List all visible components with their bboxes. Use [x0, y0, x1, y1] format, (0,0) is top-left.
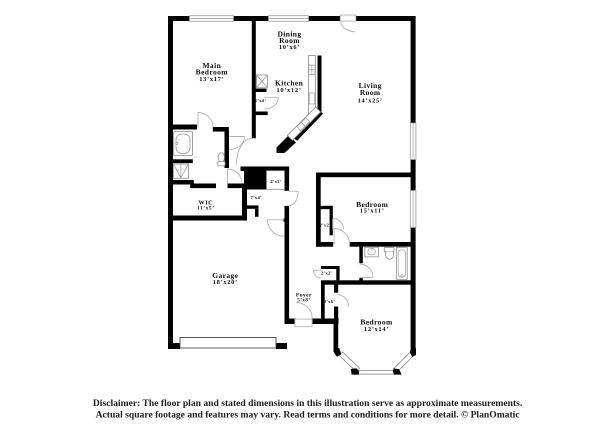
svg-text:2’x2’: 2’x2’ [320, 222, 331, 227]
svg-text:5’x8’: 5’x8’ [297, 299, 310, 304]
svg-text:12’x14’: 12’x14’ [364, 326, 389, 333]
svg-text:18’x20’: 18’x20’ [213, 279, 238, 286]
svg-text:13’x17’: 13’x17’ [199, 76, 224, 83]
svg-text:1’x4’: 1’x4’ [255, 98, 266, 103]
svg-text:2’x6’: 2’x6’ [324, 299, 335, 304]
svg-text:Room: Room [360, 88, 381, 97]
svg-text:7’x4’: 7’x4’ [251, 195, 262, 200]
svg-text:Kitchen: Kitchen [275, 78, 304, 87]
svg-text:Actual square footage and feat: Actual square footage and features may v… [96, 409, 521, 420]
svg-text:2’x2’: 2’x2’ [321, 271, 332, 276]
svg-text:4’x3’: 4’x3’ [270, 179, 281, 184]
svg-text:11’x5’: 11’x5’ [197, 206, 215, 212]
svg-text:10’x12’: 10’x12’ [277, 87, 302, 94]
svg-text:14’x25’: 14’x25’ [358, 98, 383, 105]
svg-text:Disclaimer: The floor plan and: Disclaimer: The floor plan and stated di… [93, 398, 522, 409]
svg-text:10’x6’: 10’x6’ [279, 44, 300, 51]
svg-text:Foyer: Foyer [296, 292, 312, 298]
svg-text:15’x11’: 15’x11’ [360, 207, 385, 214]
